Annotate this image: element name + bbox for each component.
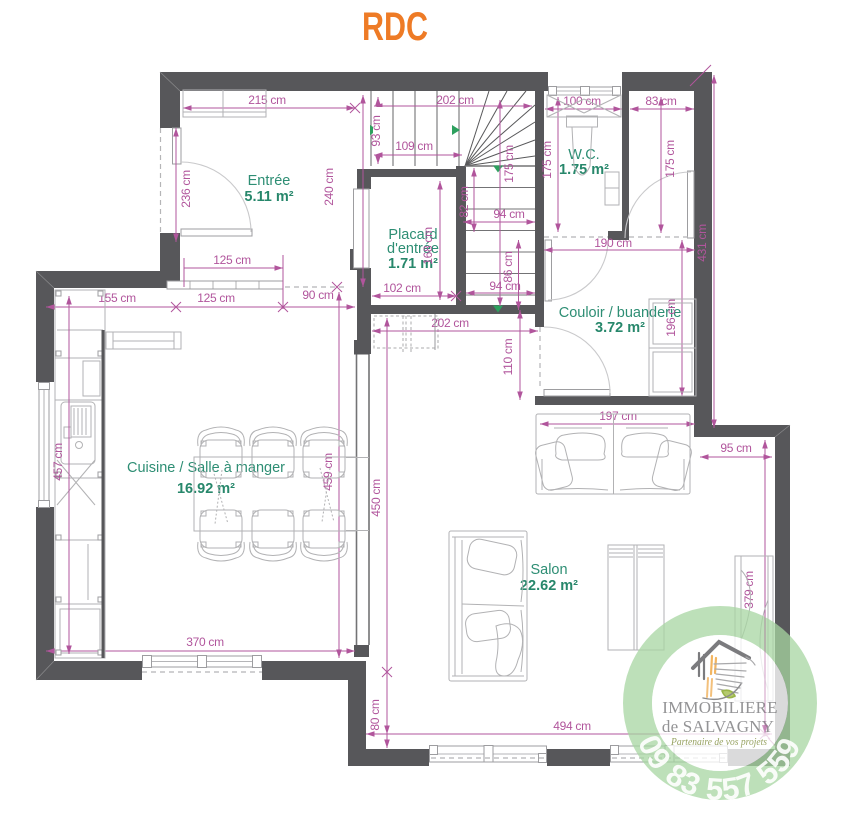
svg-text:IMMOBILIERE: IMMOBILIERE	[662, 698, 778, 717]
svg-text:459 cm: 459 cm	[321, 453, 335, 491]
svg-text:125 cm: 125 cm	[197, 291, 235, 305]
svg-text:215 cm: 215 cm	[248, 93, 286, 107]
svg-text:202 cm: 202 cm	[431, 316, 469, 330]
svg-text:457 cm: 457 cm	[51, 443, 65, 481]
svg-text:16.92 m²: 16.92 m²	[177, 481, 235, 497]
svg-text:94 cm: 94 cm	[489, 279, 520, 293]
svg-text:236 cm: 236 cm	[179, 170, 193, 208]
svg-text:22.62 m²: 22.62 m²	[520, 578, 578, 594]
svg-text:Partenaire de vos projets: Partenaire de vos projets	[670, 737, 767, 748]
svg-text:197 cm: 197 cm	[599, 409, 637, 423]
svg-text:175 cm: 175 cm	[502, 145, 516, 183]
svg-text:494 cm: 494 cm	[553, 719, 591, 733]
svg-text:155 cm: 155 cm	[98, 291, 136, 305]
svg-text:80 cm: 80 cm	[368, 699, 382, 730]
svg-text:190 cm: 190 cm	[594, 236, 632, 250]
svg-text:175 cm: 175 cm	[663, 140, 677, 178]
svg-text:379 cm: 379 cm	[742, 571, 756, 609]
svg-text:102 cm: 102 cm	[383, 281, 421, 295]
svg-text:82 cm: 82 cm	[457, 186, 471, 217]
svg-text:95 cm: 95 cm	[720, 441, 751, 455]
svg-text:90 cm: 90 cm	[302, 288, 333, 302]
svg-text:3.72 m²: 3.72 m²	[595, 320, 645, 336]
svg-text:450 cm: 450 cm	[369, 479, 383, 517]
svg-text:125 cm: 125 cm	[213, 253, 251, 267]
svg-text:196 cm: 196 cm	[664, 299, 678, 337]
svg-text:86 cm: 86 cm	[501, 251, 515, 282]
svg-text:110 cm: 110 cm	[501, 338, 515, 375]
svg-text:RDC: RDC	[362, 5, 428, 49]
svg-text:431 cm: 431 cm	[695, 224, 709, 262]
svg-text:202 cm: 202 cm	[436, 93, 474, 107]
svg-text:Salon: Salon	[530, 562, 567, 578]
svg-text:Entrée: Entrée	[248, 173, 291, 189]
svg-text:168 cm: 168 cm	[421, 227, 435, 265]
svg-text:de SALVAGNY: de SALVAGNY	[662, 717, 774, 736]
svg-text:1.75 m²: 1.75 m²	[559, 162, 609, 178]
svg-text:109 cm: 109 cm	[395, 139, 433, 153]
svg-text:370 cm: 370 cm	[186, 635, 224, 649]
svg-text:94 cm: 94 cm	[493, 207, 524, 221]
svg-text:175 cm: 175 cm	[540, 141, 554, 179]
svg-text:5.11 m²: 5.11 m²	[244, 189, 293, 205]
svg-text:93 cm: 93 cm	[369, 115, 383, 146]
svg-text:240 cm: 240 cm	[322, 168, 336, 206]
svg-text:Couloir / buanderie: Couloir / buanderie	[559, 305, 682, 321]
